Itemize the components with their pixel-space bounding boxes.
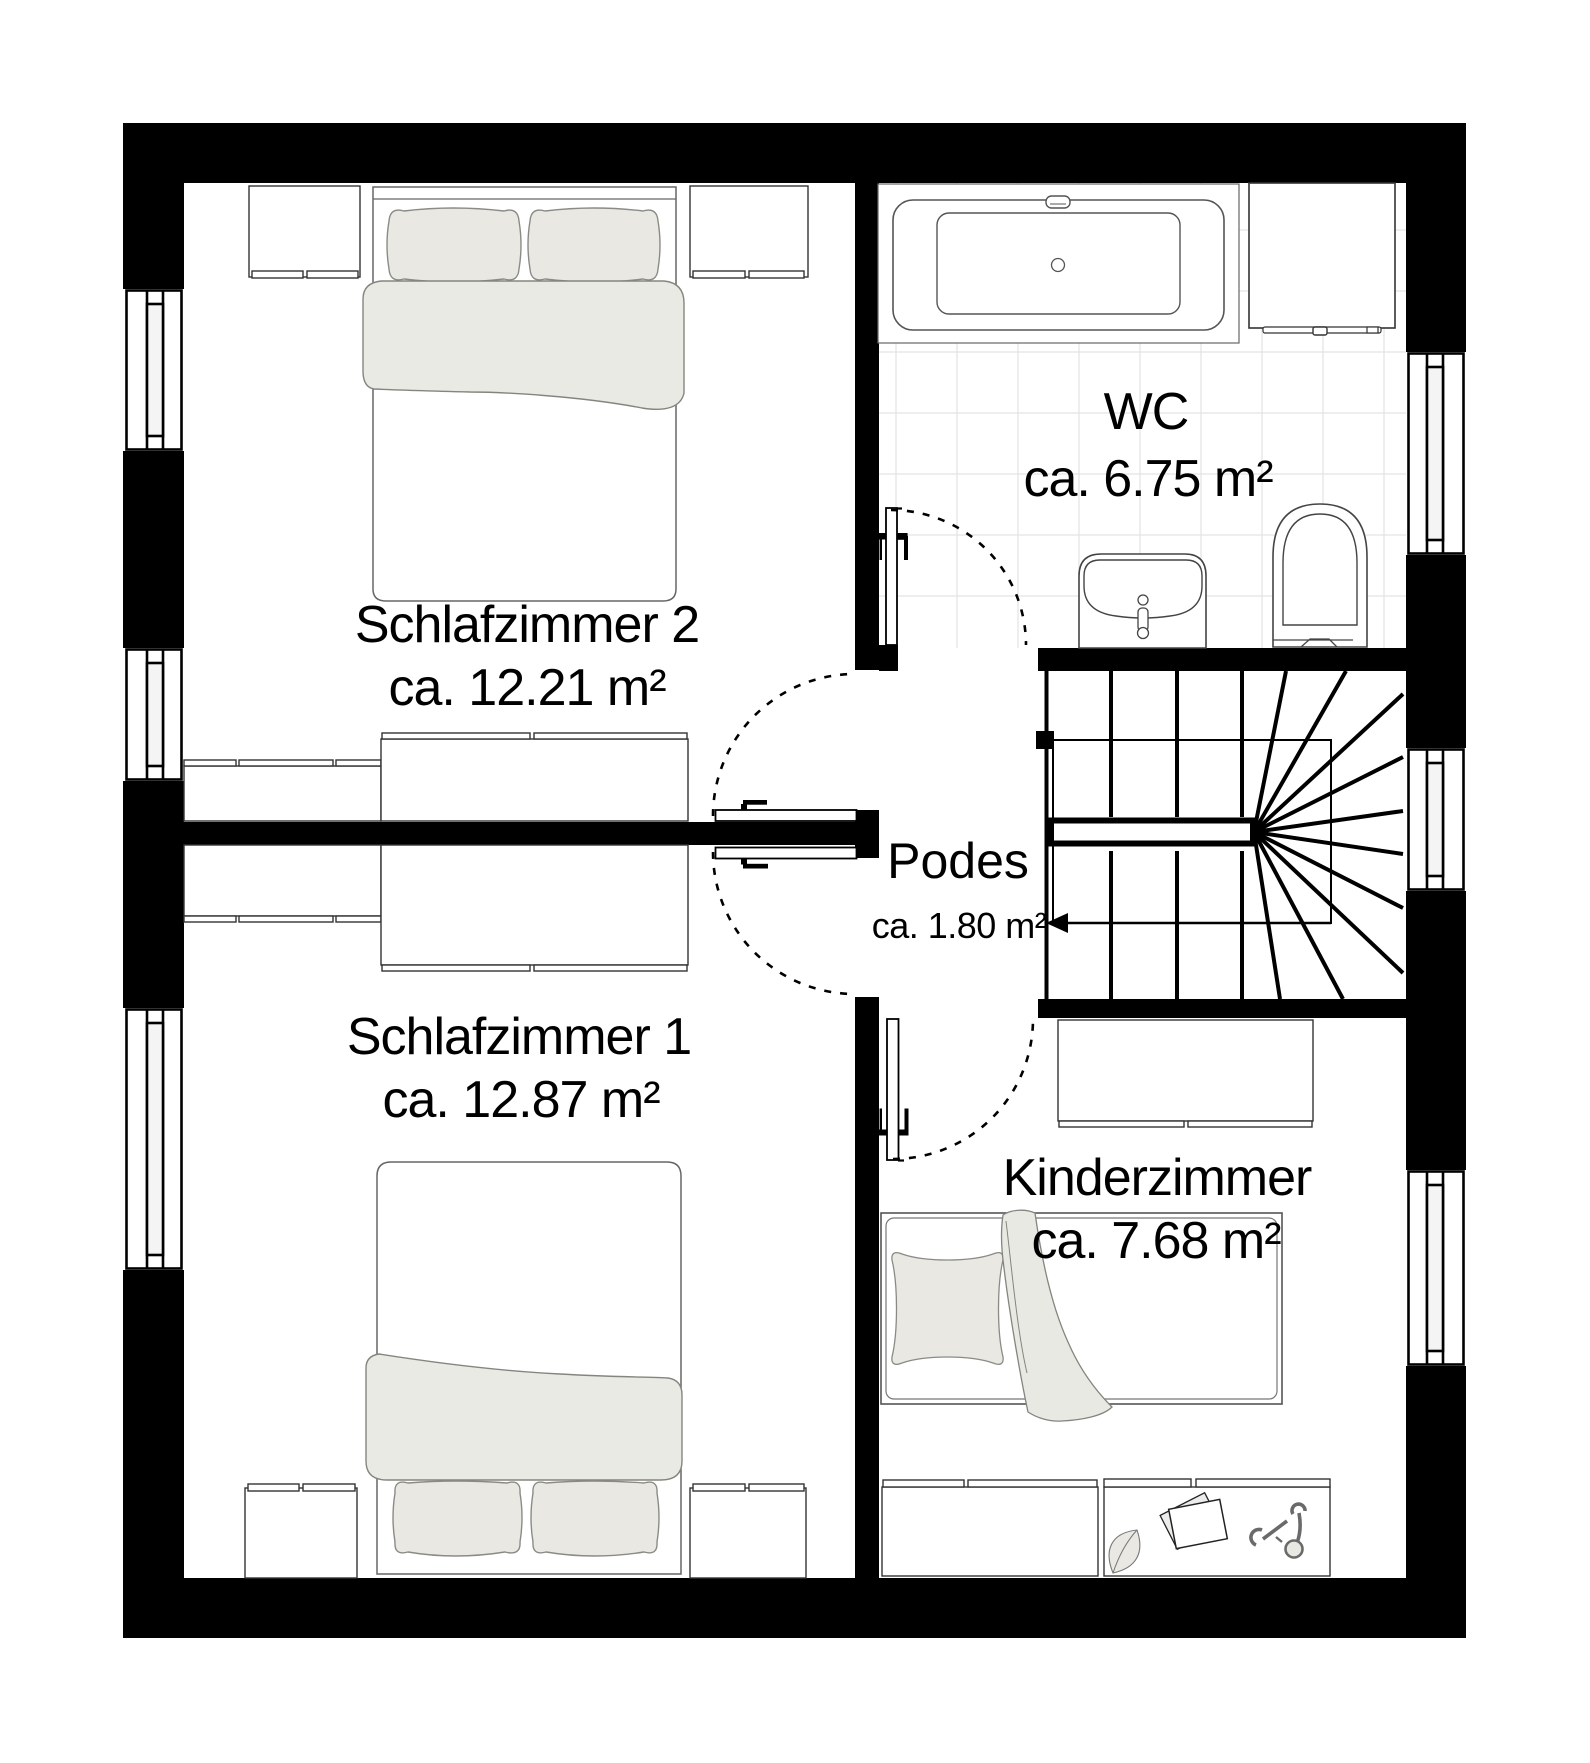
svg-text:ca. 1.80 m²: ca. 1.80 m² <box>872 905 1047 946</box>
svg-text:ca. 12.21 m²: ca. 12.21 m² <box>388 659 666 717</box>
svg-text:ca. 12.87 m²: ca. 12.87 m² <box>382 1071 660 1129</box>
svg-text:WC: WC <box>1104 383 1189 441</box>
svg-text:Podes: Podes <box>887 833 1029 889</box>
svg-text:Kinderzimmer: Kinderzimmer <box>1003 1149 1312 1207</box>
svg-text:Schlafzimmer 2: Schlafzimmer 2 <box>355 596 699 654</box>
svg-text:Schlafzimmer 1: Schlafzimmer 1 <box>347 1008 691 1066</box>
svg-text:ca. 6.75 m²: ca. 6.75 m² <box>1023 450 1273 508</box>
svg-text:ca. 7.68 m²: ca. 7.68 m² <box>1031 1212 1281 1270</box>
